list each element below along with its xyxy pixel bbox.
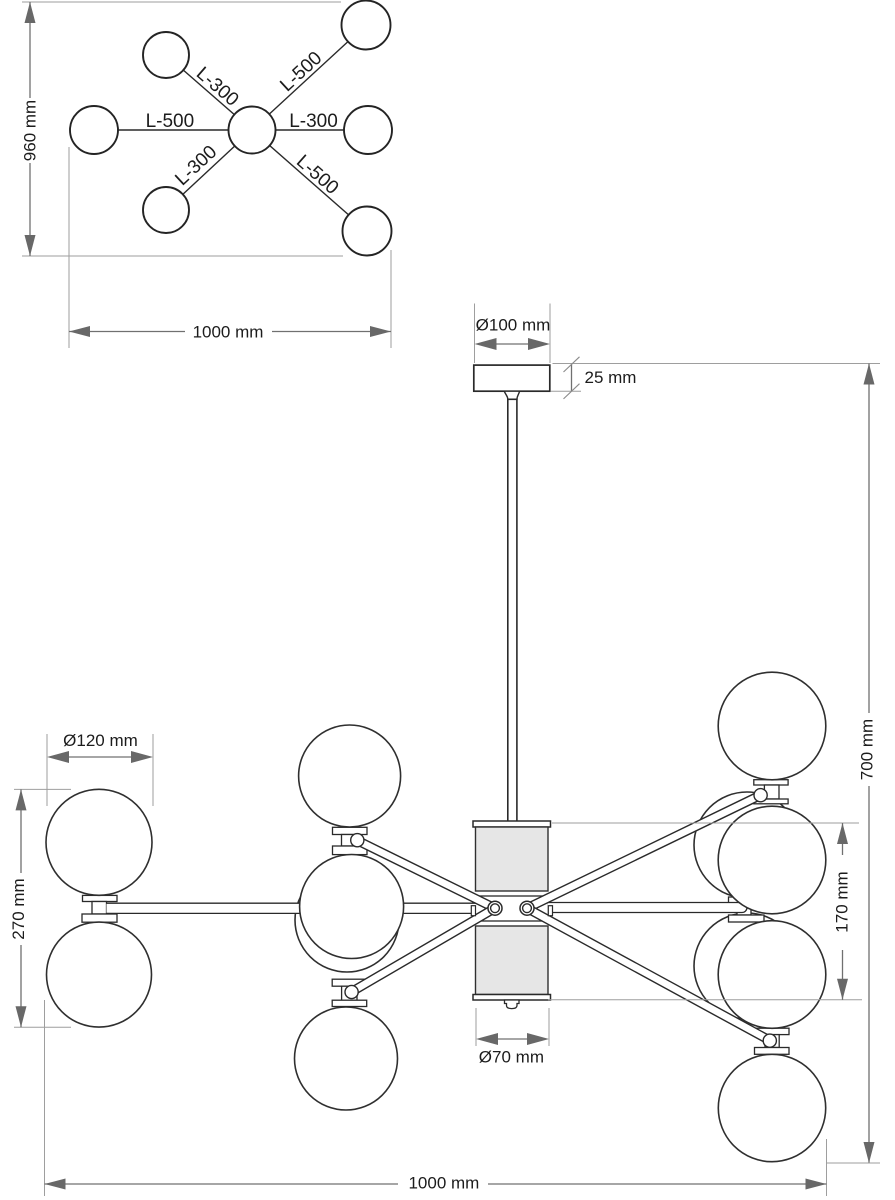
svg-text:25 mm: 25 mm: [585, 368, 637, 387]
svg-text:L-500: L-500: [146, 111, 195, 132]
svg-text:700 mm: 700 mm: [857, 719, 876, 780]
svg-text:960 mm: 960 mm: [20, 100, 39, 161]
svg-text:L-300: L-300: [289, 111, 338, 132]
svg-text:Ø70 mm: Ø70 mm: [479, 1048, 544, 1067]
svg-text:Ø120 mm: Ø120 mm: [63, 731, 138, 750]
svg-text:1000 mm: 1000 mm: [408, 1173, 479, 1192]
svg-text:270 mm: 270 mm: [9, 878, 28, 939]
svg-text:1000 mm: 1000 mm: [193, 323, 264, 342]
svg-text:170 mm: 170 mm: [832, 871, 851, 932]
svg-text:Ø100 mm: Ø100 mm: [476, 316, 551, 335]
